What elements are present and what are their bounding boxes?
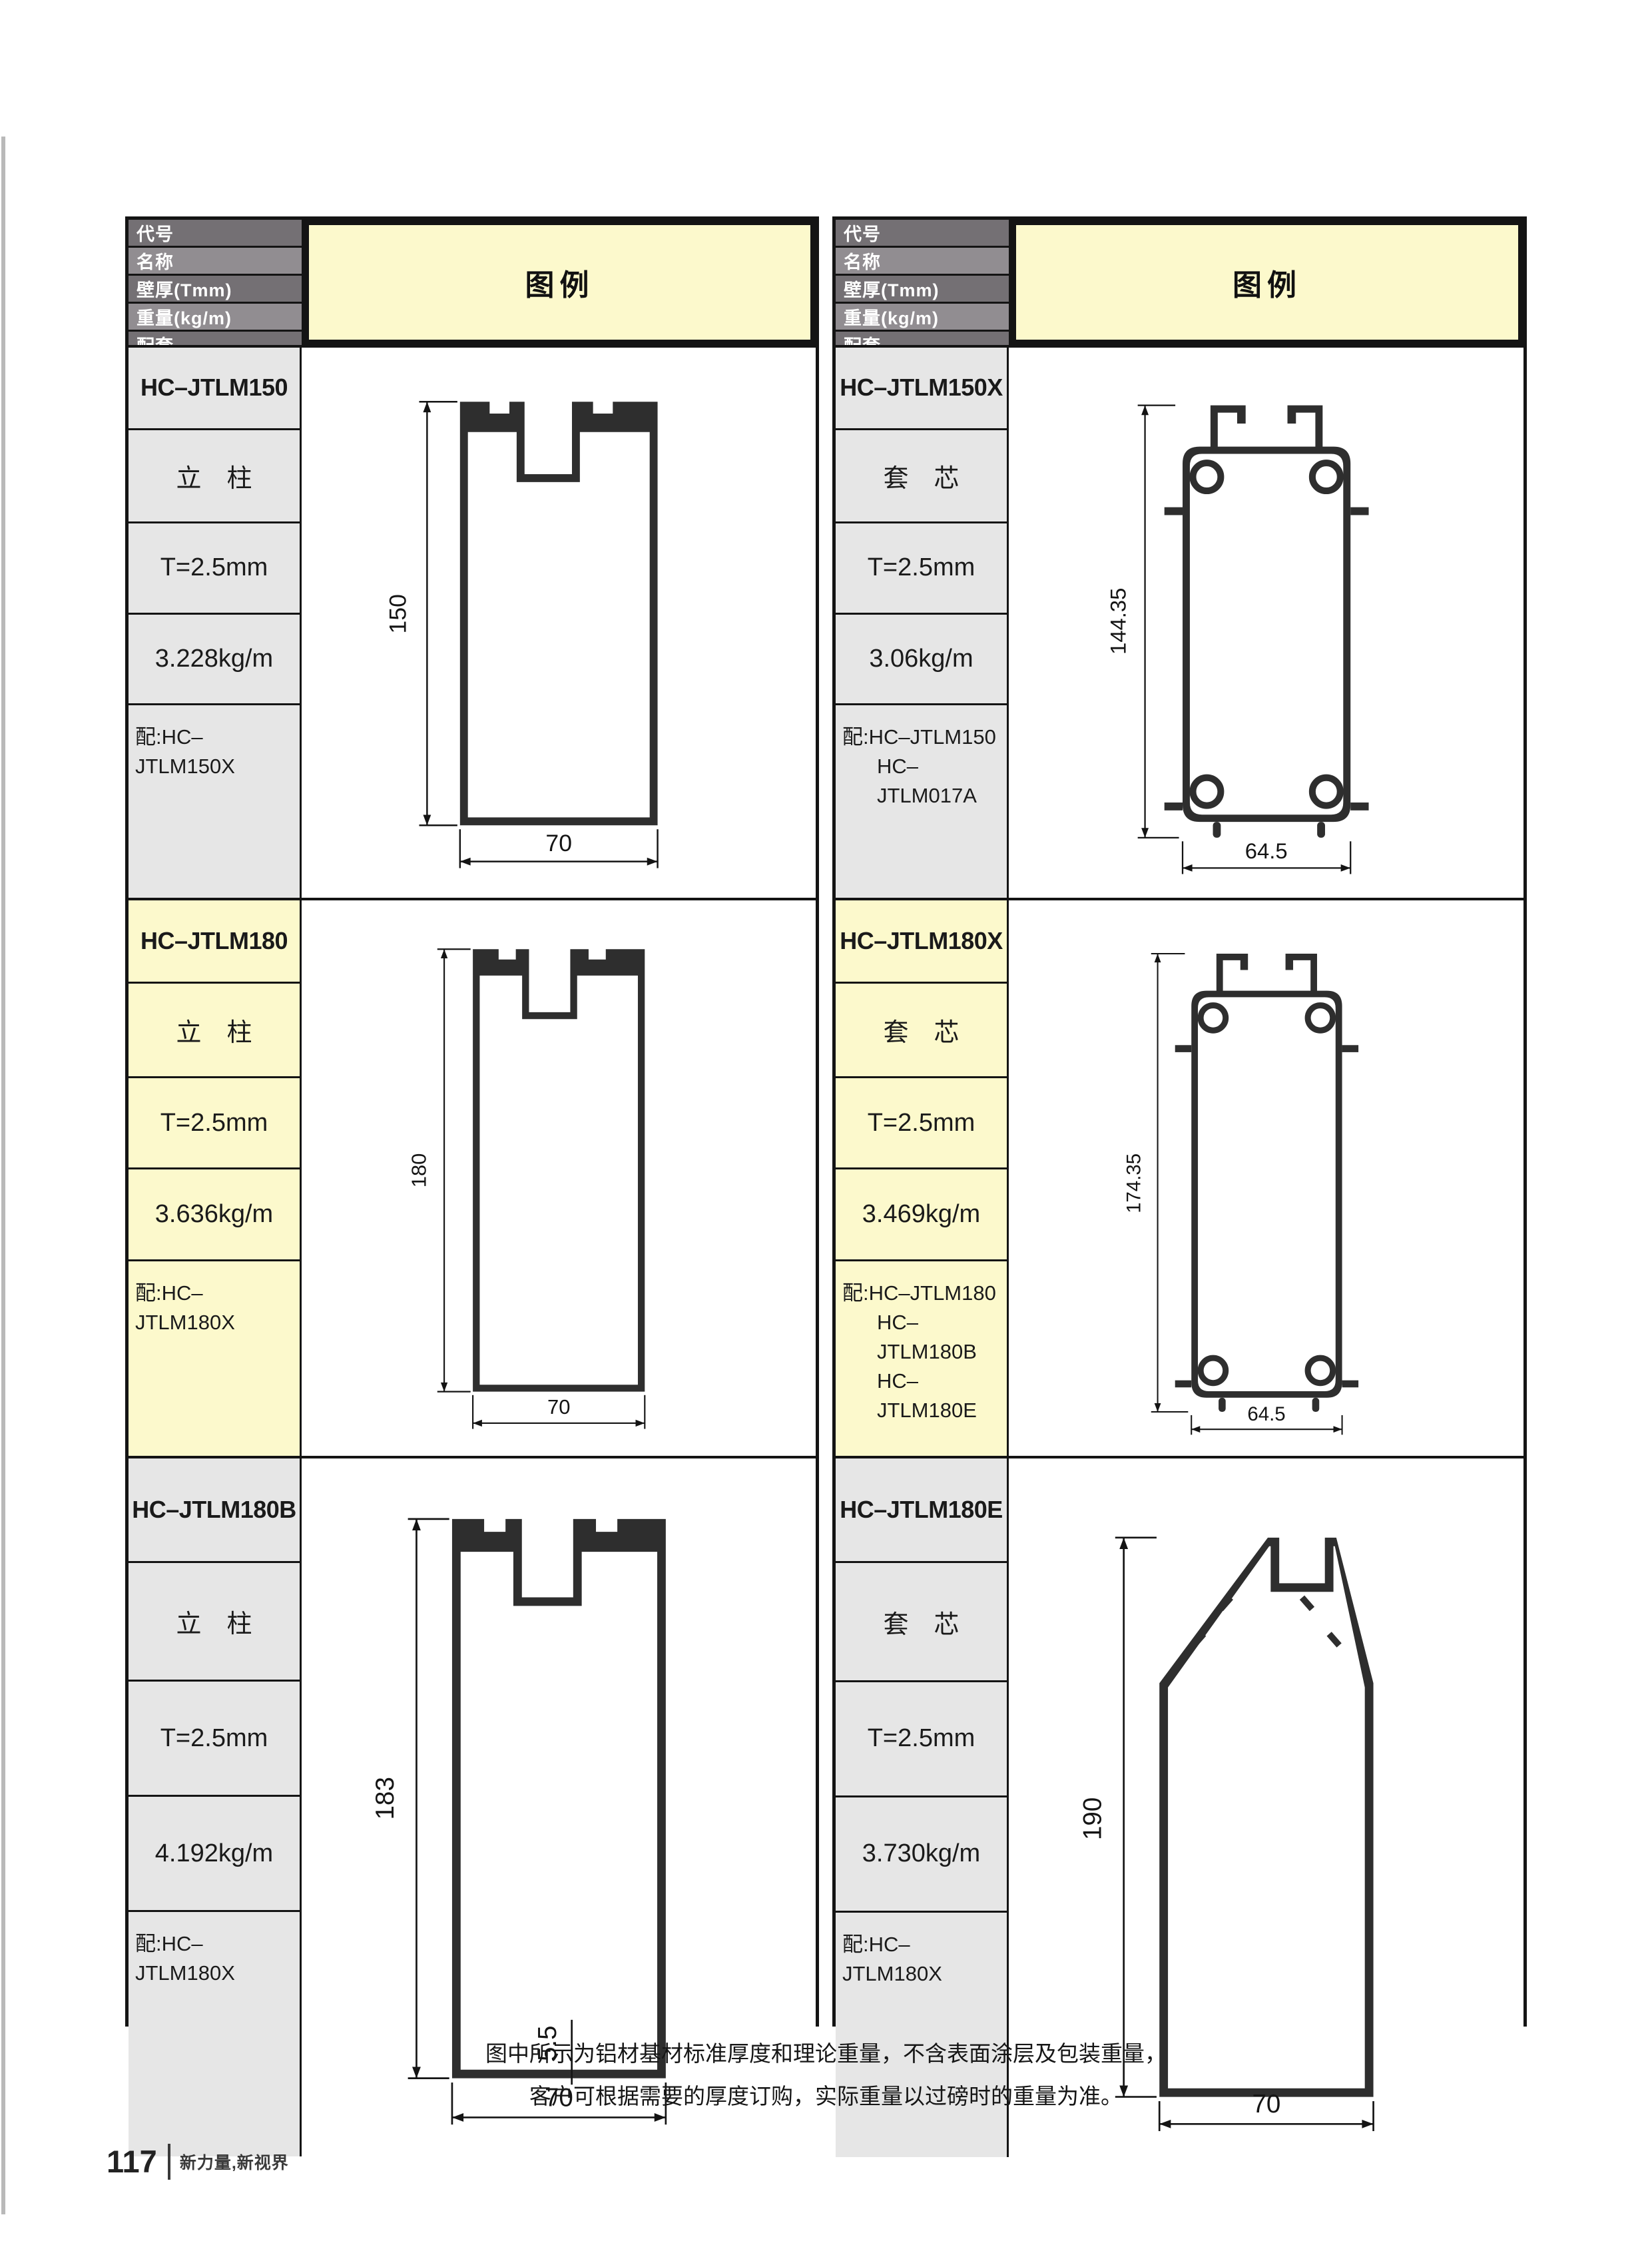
profile-name: 套 芯 xyxy=(836,1563,1007,1682)
profile-name: 立 柱 xyxy=(129,430,300,523)
entry-labels: HC–JTLM150X 套 芯 T=2.5mm 3.06kg/m 配:HC–JT… xyxy=(836,348,1009,898)
profile-thickness: T=2.5mm xyxy=(129,1682,300,1797)
footer-tagline: 新力量,新视界 xyxy=(180,2150,289,2174)
profile-code: HC–JTLM180 xyxy=(129,900,300,984)
header-row-code: 代号 xyxy=(836,220,1009,246)
legend-header: 图例 xyxy=(304,220,816,345)
match-line: HC–JTLM180E xyxy=(842,1367,1003,1425)
footer-divider xyxy=(168,2144,170,2180)
profile-weight: 3.469kg/m xyxy=(836,1169,1007,1261)
footer-note: 图中所示为铝材基材标准厚度和理论重量，不含表面涂层及包装重量， 客户可根据需要的… xyxy=(0,2033,1652,2118)
dim-width: 70 xyxy=(545,830,572,856)
header-row-name: 名称 xyxy=(129,248,302,274)
header-row-code: 代号 xyxy=(129,220,302,246)
cross-section-drawing: 150 70 xyxy=(328,356,789,889)
page-edge-strip xyxy=(1,137,5,2214)
profile-weight: 3.730kg/m xyxy=(836,1797,1007,1913)
profile-match: 配:HC–JTLM150 HC–JTLM017A xyxy=(836,705,1007,898)
profile-match: 配:HC–JTLM150X xyxy=(129,705,300,898)
profile-thickness: T=2.5mm xyxy=(129,523,300,614)
catalog-page: 代号 名称 壁厚(Tmm) 重量(kg/m) 配套 图例 HC–JTLM150 … xyxy=(0,0,1652,2241)
profile-weight: 3.636kg/m xyxy=(129,1169,300,1261)
dim-height: 180 xyxy=(407,1153,430,1187)
profile-code: HC–JTLM150X xyxy=(836,348,1007,430)
entry-labels: HC–JTLM150 立 柱 T=2.5mm 3.228kg/m 配:HC–JT… xyxy=(129,348,302,898)
entry-row-jtlm180x: HC–JTLM180X 套 芯 T=2.5mm 3.469kg/m 配:HC–J… xyxy=(836,898,1523,1456)
footer-note-line2: 客户可根据需要的厚度订购，实际重量以过磅时的重量为准。 xyxy=(0,2075,1652,2118)
profile-drawing-jtlm180x: 174.35 64.5 xyxy=(1009,900,1523,1456)
profile-code: HC–JTLM180E xyxy=(836,1458,1007,1563)
profile-name: 套 芯 xyxy=(836,984,1007,1078)
profile-name: 立 柱 xyxy=(129,1563,300,1682)
entry-labels: HC–JTLM180 立 柱 T=2.5mm 3.636kg/m 配:HC–JT… xyxy=(129,900,302,1456)
match-line: HC–JTLM017A xyxy=(842,752,1003,810)
dim-width: 64.5 xyxy=(1245,838,1288,863)
profile-weight: 3.06kg/m xyxy=(836,615,1007,705)
profile-drawing-jtlm150: 150 70 xyxy=(302,348,816,898)
profile-code: HC–JTLM180X xyxy=(836,900,1007,984)
header-row-thickness: 壁厚(Tmm) xyxy=(836,276,1009,302)
profile-name: 立 柱 xyxy=(129,984,300,1078)
table-header-left: 代号 名称 壁厚(Tmm) 重量(kg/m) 配套 图例 xyxy=(129,220,816,345)
entry-row-jtlm180: HC–JTLM180 立 柱 T=2.5mm 3.636kg/m 配:HC–JT… xyxy=(129,898,816,1456)
header-label-column: 代号 名称 壁厚(Tmm) 重量(kg/m) 配套 xyxy=(836,220,1011,345)
table-header-right: 代号 名称 壁厚(Tmm) 重量(kg/m) 配套 图例 xyxy=(836,220,1523,345)
entry-labels: HC–JTLM180X 套 芯 T=2.5mm 3.469kg/m 配:HC–J… xyxy=(836,900,1009,1456)
dim-height: 144.35 xyxy=(1105,588,1130,655)
profile-table-right: 代号 名称 壁厚(Tmm) 重量(kg/m) 配套 图例 HC–JTLM150X… xyxy=(832,216,1527,2027)
cross-section-drawing: 174.35 64.5 xyxy=(1076,909,1457,1448)
dim-height: 174.35 xyxy=(1123,1153,1145,1213)
match-line: 配:HC–JTLM180 xyxy=(842,1279,996,1308)
entry-row-jtlm150: HC–JTLM150 立 柱 T=2.5mm 3.228kg/m 配:HC–JT… xyxy=(129,345,816,898)
header-label-column: 代号 名称 壁厚(Tmm) 重量(kg/m) 配套 xyxy=(129,220,304,345)
profile-match: 配:HC–JTLM180 HC–JTLM180B HC–JTLM180E xyxy=(836,1261,1007,1456)
match-line: HC–JTLM180B xyxy=(842,1308,1003,1367)
match-line: 配:HC–JTLM180X xyxy=(135,1279,296,1337)
profile-thickness: T=2.5mm xyxy=(836,1078,1007,1170)
match-line: 配:HC–JTLM180X xyxy=(135,1929,296,1988)
match-line: 配:HC–JTLM180X xyxy=(842,1930,1003,1989)
header-row-weight: 重量(kg/m) xyxy=(836,304,1009,330)
profile-name: 套 芯 xyxy=(836,430,1007,523)
profile-drawing-jtlm150x: 144.35 64.5 xyxy=(1009,348,1523,898)
profile-table-left: 代号 名称 壁厚(Tmm) 重量(kg/m) 配套 图例 HC–JTLM150 … xyxy=(125,216,819,2027)
match-line: 配:HC–JTLM150X xyxy=(135,723,296,781)
page-footer: 117 新力量,新视界 xyxy=(107,2143,289,2180)
legend-header: 图例 xyxy=(1011,220,1523,345)
dim-width: 64.5 xyxy=(1247,1403,1285,1425)
profile-weight: 3.228kg/m xyxy=(129,615,300,705)
profile-thickness: T=2.5mm xyxy=(129,1078,300,1170)
profile-weight: 4.192kg/m xyxy=(129,1797,300,1912)
page-number: 117 xyxy=(107,2143,157,2180)
profile-thickness: T=2.5mm xyxy=(836,523,1007,614)
header-row-name: 名称 xyxy=(836,248,1009,274)
profile-thickness: T=2.5mm xyxy=(836,1682,1007,1797)
entry-row-jtlm150x: HC–JTLM150X 套 芯 T=2.5mm 3.06kg/m 配:HC–JT… xyxy=(836,345,1523,898)
profile-code: HC–JTLM150 xyxy=(129,348,300,430)
profile-match: 配:HC–JTLM180X xyxy=(129,1261,300,1456)
header-row-thickness: 壁厚(Tmm) xyxy=(129,276,302,302)
dim-height: 190 xyxy=(1078,1797,1107,1839)
dim-height: 150 xyxy=(385,594,412,633)
dim-height: 183 xyxy=(371,1777,400,1819)
dim-width: 70 xyxy=(547,1395,570,1419)
cross-section-drawing: 180 70 xyxy=(358,909,759,1448)
profile-drawing-jtlm180: 180 70 xyxy=(302,900,816,1456)
cross-section-drawing: 144.35 64.5 xyxy=(1054,356,1478,889)
header-row-weight: 重量(kg/m) xyxy=(129,304,302,330)
match-line: 配:HC–JTLM150 xyxy=(842,723,996,752)
profile-code: HC–JTLM180B xyxy=(129,1458,300,1563)
footer-note-line1: 图中所示为铝材基材标准厚度和理论重量，不含表面涂层及包装重量， xyxy=(0,2033,1652,2075)
